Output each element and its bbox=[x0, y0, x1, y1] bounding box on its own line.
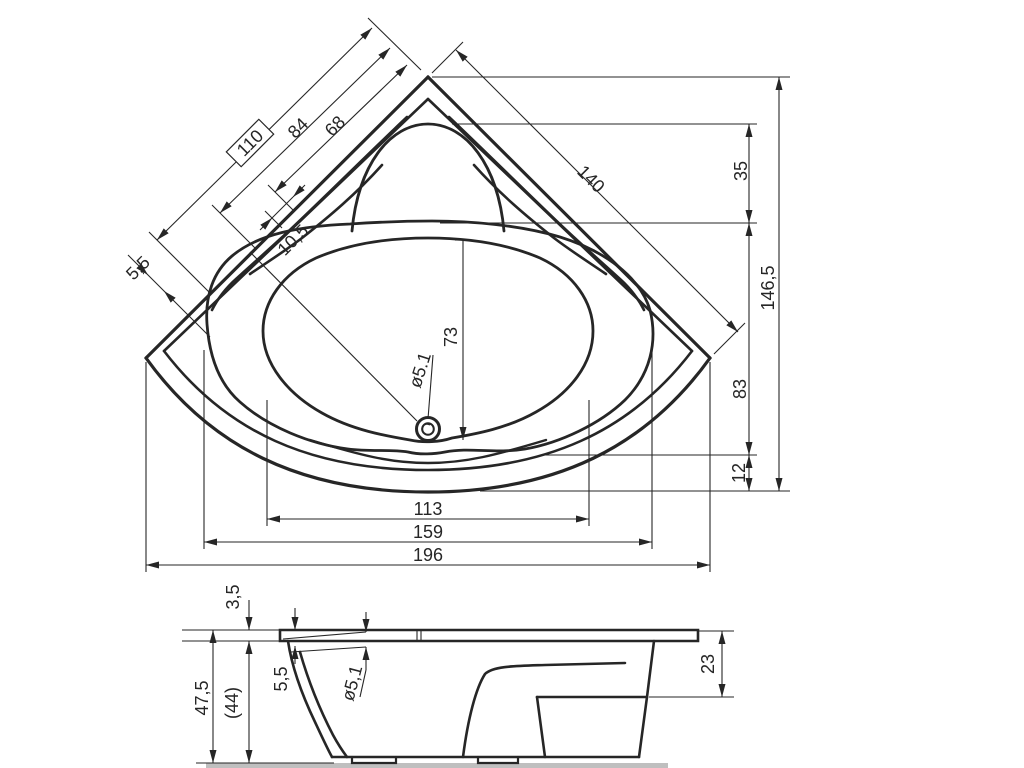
arrowhead-32 bbox=[292, 617, 299, 630]
dim-label-side-drain_dia: ø5,1 bbox=[338, 663, 367, 703]
arrowhead-12 bbox=[460, 427, 467, 440]
arrowhead-33 bbox=[292, 646, 299, 659]
outline-14 bbox=[280, 630, 698, 641]
dim-label-top-right_chain_1: 35 bbox=[731, 161, 751, 181]
arrowhead-27 bbox=[210, 630, 217, 643]
dim-line-9 bbox=[268, 185, 294, 211]
arrowhead-16 bbox=[746, 442, 753, 455]
drain-outer-ring bbox=[417, 418, 440, 441]
arrowhead-29 bbox=[246, 641, 253, 654]
outline-2 bbox=[146, 358, 710, 492]
arrowhead-28 bbox=[210, 750, 217, 763]
dim-label-top-right_total: 146,5 bbox=[758, 265, 778, 310]
arrowhead-21 bbox=[267, 516, 280, 523]
dim-label-top-right_chain_3: 12 bbox=[729, 463, 749, 483]
arrowhead-35 bbox=[363, 647, 370, 660]
outline-8 bbox=[263, 238, 593, 442]
bathtub-technical-drawing: 110846810,55,514073ø5.1358312146,5113159… bbox=[0, 0, 1024, 768]
dim-line-13 bbox=[714, 323, 745, 354]
dim-label-side-height_ref: (44) bbox=[222, 687, 242, 719]
dim-line-12 bbox=[432, 42, 463, 73]
outline-0 bbox=[146, 77, 428, 358]
dim-line-15 bbox=[250, 252, 417, 421]
dim-line-47 bbox=[291, 647, 366, 652]
dim-label-top-well_length: 73 bbox=[441, 327, 461, 347]
arrowhead-23 bbox=[204, 539, 217, 546]
dim-label-side-recess_depth: 5,5 bbox=[271, 666, 291, 691]
arrowhead-20 bbox=[776, 478, 783, 491]
blueprint-page: 110846810,55,514073ø5.1358312146,5113159… bbox=[0, 0, 1024, 768]
arrowhead-13 bbox=[746, 124, 753, 137]
dimension-labels: 110846810,55,514073ø5.1358312146,5113159… bbox=[122, 112, 778, 719]
bathtub-outlines bbox=[146, 77, 710, 763]
dim-label-top-edge_right: 140 bbox=[573, 161, 608, 196]
arrowhead-25 bbox=[146, 562, 159, 569]
floor-shadow-band bbox=[206, 763, 668, 768]
dim-line-8 bbox=[212, 205, 256, 249]
arrowhead-15 bbox=[746, 223, 753, 236]
outline-1 bbox=[428, 77, 710, 358]
dim-label-side-ledge_height: 23 bbox=[698, 654, 718, 674]
arrowhead-19 bbox=[776, 77, 783, 90]
arrowhead-22 bbox=[576, 516, 589, 523]
outline-19 bbox=[537, 697, 545, 757]
dim-label-side-rim_thickness: 3,5 bbox=[223, 584, 243, 609]
dim-label-top-width_mid: 159 bbox=[413, 522, 443, 542]
floor-shadow bbox=[206, 763, 668, 768]
dim-label-top-diag_a: 84 bbox=[284, 114, 312, 142]
arrowhead-31 bbox=[246, 617, 253, 630]
dim-label-top-width_inner: 113 bbox=[414, 499, 443, 519]
arrowhead-37 bbox=[719, 684, 726, 697]
dim-label-top-right_chain_2: 83 bbox=[730, 379, 750, 399]
outline-18 bbox=[537, 641, 654, 697]
arrowhead-26 bbox=[697, 562, 710, 569]
outline-20 bbox=[639, 697, 647, 757]
arrowhead-14 bbox=[746, 210, 753, 223]
dim-label-side-height_total: 47,5 bbox=[192, 680, 212, 715]
arrowhead-24 bbox=[639, 539, 652, 546]
arrowhead-30 bbox=[246, 750, 253, 763]
dim-line-46 bbox=[283, 632, 366, 639]
outline-6 bbox=[352, 124, 504, 231]
arrowhead-36 bbox=[719, 631, 726, 644]
dim-label-top-rim_thickness: 5,5 bbox=[122, 252, 154, 284]
dim-label-top-width_total: 196 bbox=[413, 545, 443, 565]
dim-label-top-diag_b: 68 bbox=[321, 112, 349, 140]
